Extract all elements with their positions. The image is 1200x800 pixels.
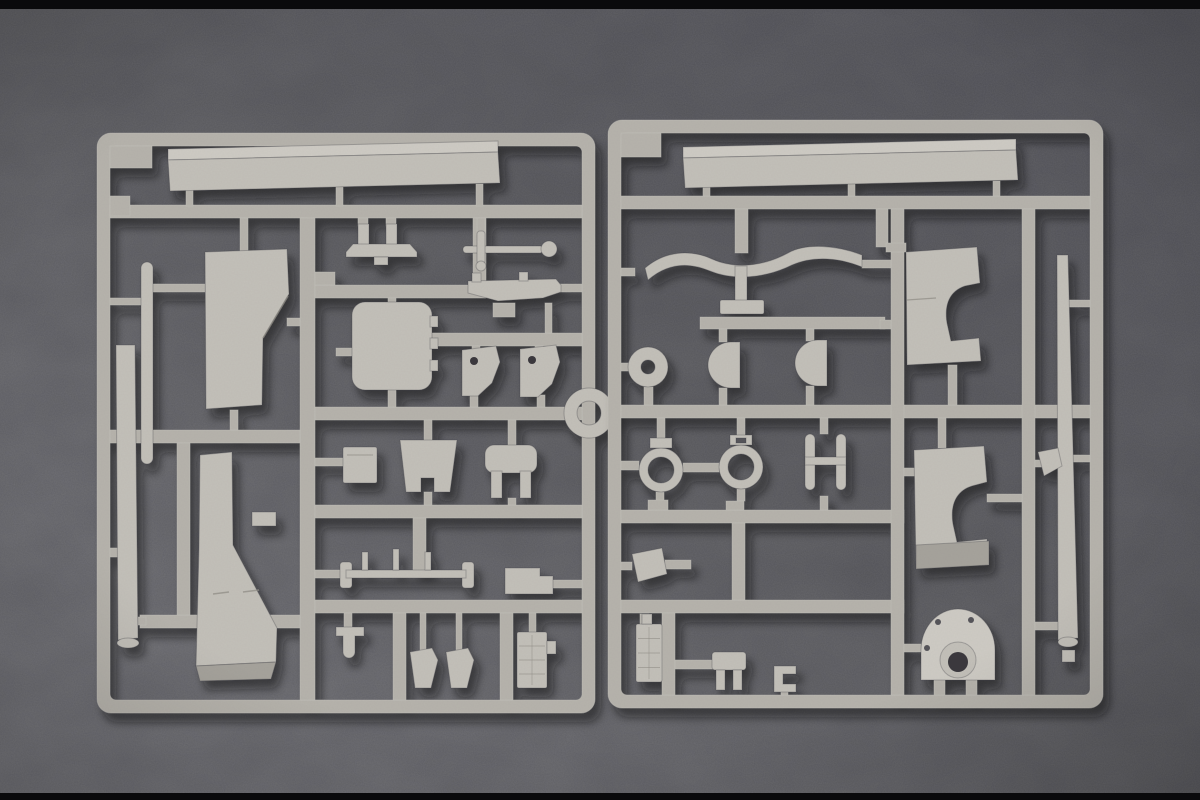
vignette-overlay bbox=[0, 0, 1200, 800]
letterbox-bottom bbox=[0, 793, 1200, 800]
letterbox-top bbox=[0, 0, 1200, 9]
sprue-photo-stage bbox=[0, 0, 1200, 800]
sprue-photo bbox=[0, 0, 1200, 800]
